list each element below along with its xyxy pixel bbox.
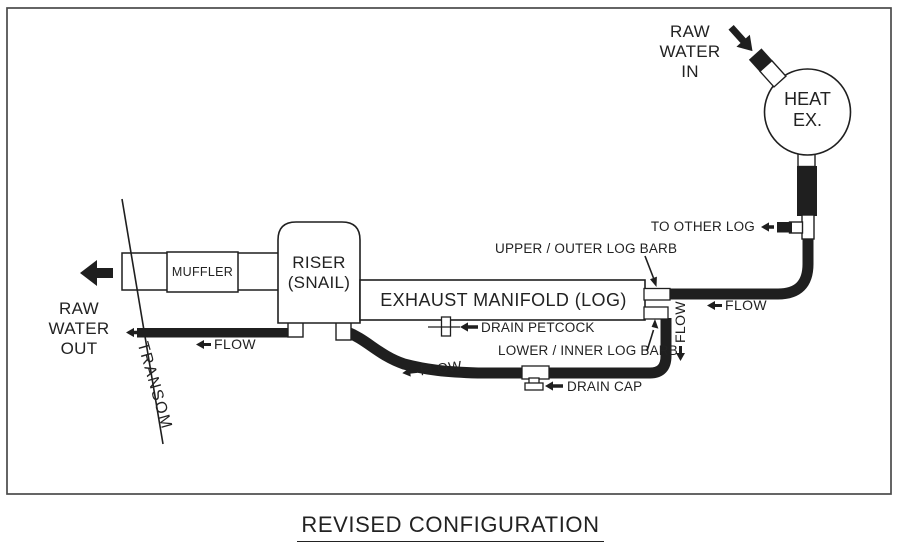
drain-tee-body [522, 366, 549, 379]
raw-water-out-label: RAW WATER OUT [39, 299, 119, 359]
upper-barb-leader-arrow-icon [650, 277, 657, 287]
log-tee-fitting [802, 215, 814, 239]
drain-cap-arrow-icon [545, 381, 563, 390]
lower-barb-leader-arrow-icon [652, 319, 659, 329]
exhaust-manifold-label: EXHAUST MANIFOLD (LOG) [362, 280, 645, 320]
flow-label-out-hose: FLOW [196, 336, 256, 352]
flow-arrow-icon [707, 301, 722, 310]
drain-cap-fitting [525, 383, 543, 390]
riser-right-stub [336, 322, 351, 340]
muffler-label: MUFFLER [167, 252, 238, 292]
to-other-log-arrow-icon [761, 222, 774, 231]
lower-log-barb-label: LOWER / INNER LOG BARB [498, 343, 678, 359]
drain-petcock-label: DRAIN PETCOCK [481, 320, 595, 336]
flow-label-upper-hose: FLOW [707, 297, 767, 313]
riser-label: RISER (SNAIL) [278, 222, 360, 323]
flow-arrow-icon [402, 366, 418, 377]
upper-supply-hose [668, 238, 808, 294]
upper-log-barb-label: UPPER / OUTER LOG BARB [495, 241, 677, 257]
drain-cap-label: DRAIN CAP [567, 379, 642, 395]
heat-exchanger-label: HEAT EX. [769, 89, 846, 131]
to-other-log-stub [777, 222, 792, 233]
diagram-title: REVISED CONFIGURATION [0, 512, 901, 542]
raw-water-inlet-assembly [724, 21, 786, 87]
raw-water-in-label: RAW WATER IN [650, 22, 730, 82]
to-other-log-label: TO OTHER LOG [640, 219, 755, 235]
upper-barb-leader-line [645, 256, 654, 278]
heat-ex-down-hose [797, 166, 817, 216]
upper-log-barb-fitting [644, 289, 670, 301]
exhaust-out-arrow-icon [80, 260, 113, 286]
lower-log-barb-fitting [644, 307, 668, 319]
drain-petcock-arrow-icon [460, 322, 478, 331]
flow-arrow-icon [676, 346, 685, 361]
riser-left-stub [288, 322, 303, 337]
drawing-frame [7, 8, 891, 494]
flow-label-down-hose: FLOW [672, 302, 688, 360]
piping-diagram [0, 0, 901, 551]
diagram-canvas: RAW WATER IN HEAT EX. TO OTHER LOG UPPER… [0, 0, 901, 551]
flow-arrow-icon [196, 340, 211, 349]
